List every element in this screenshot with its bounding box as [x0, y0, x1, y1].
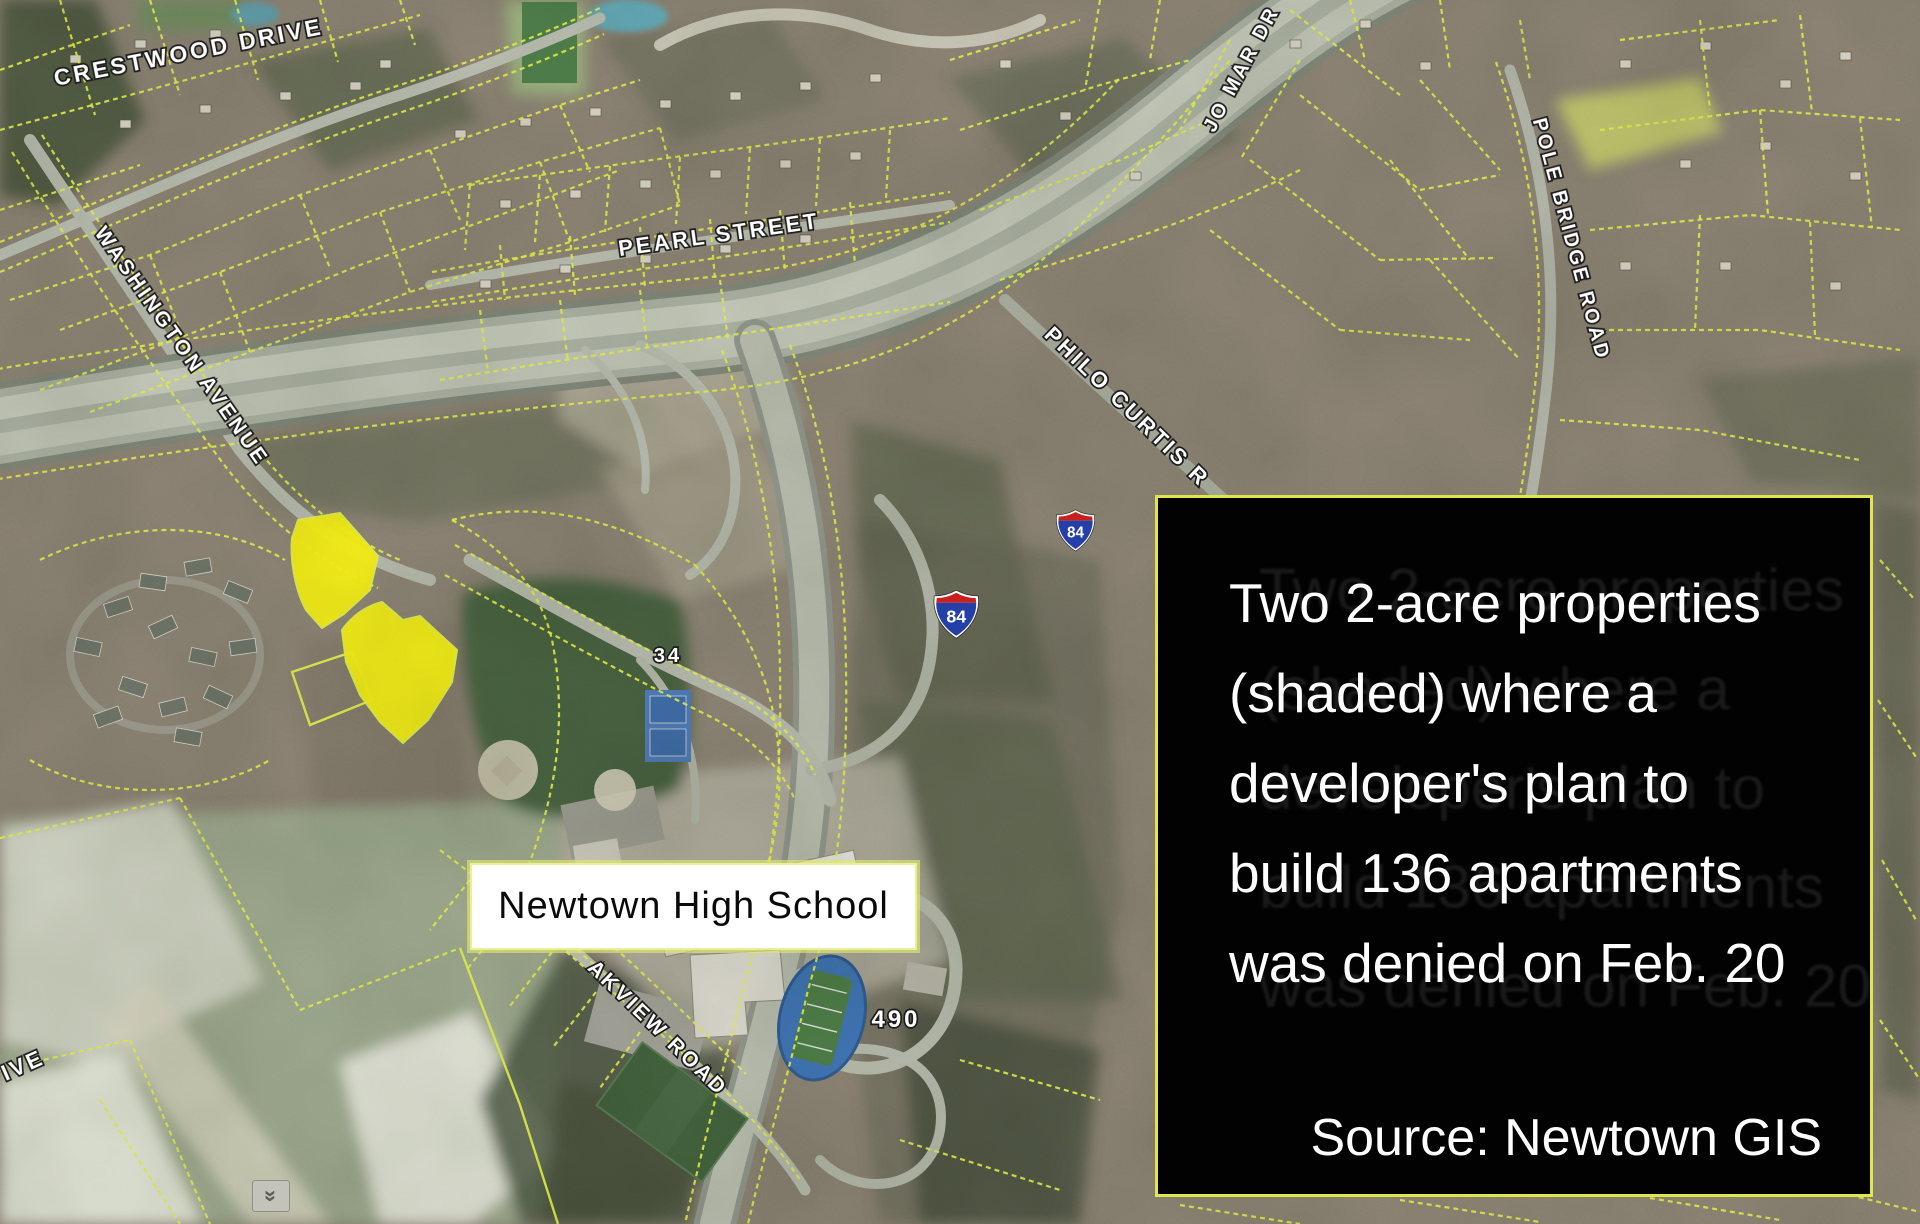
caption-text: Two 2-acre properties (shaded) where a d…	[1229, 558, 1786, 1008]
school-label: Newtown High School	[470, 863, 917, 950]
chevron-glyph: »	[260, 1190, 282, 1202]
caption-source: Source: Newtown GIS	[1310, 1108, 1822, 1168]
caption-box: Two 2-acre properties (shaded) where a d…	[1155, 495, 1873, 1197]
scroll-down-icon[interactable]: »	[252, 1180, 290, 1212]
gis-map-screenshot: 84 84 CRESTWOOD DRIVE WASHINGTON AVENUE …	[0, 0, 1920, 1224]
caption-line: was denied on Feb. 20	[1229, 918, 1786, 1008]
school-label-text: Newtown High School	[498, 885, 889, 928]
svg-text:84: 84	[1067, 525, 1085, 542]
caption-line: developer's plan to	[1229, 738, 1786, 828]
caption-line: Two 2-acre properties	[1229, 558, 1786, 648]
road-number-34: 34	[654, 645, 682, 667]
caption-line: (shaded) where a	[1229, 648, 1786, 738]
road-number-490: 490	[871, 1006, 920, 1033]
caption-line: build 136 apartments	[1229, 828, 1786, 918]
svg-text:84: 84	[946, 607, 966, 627]
